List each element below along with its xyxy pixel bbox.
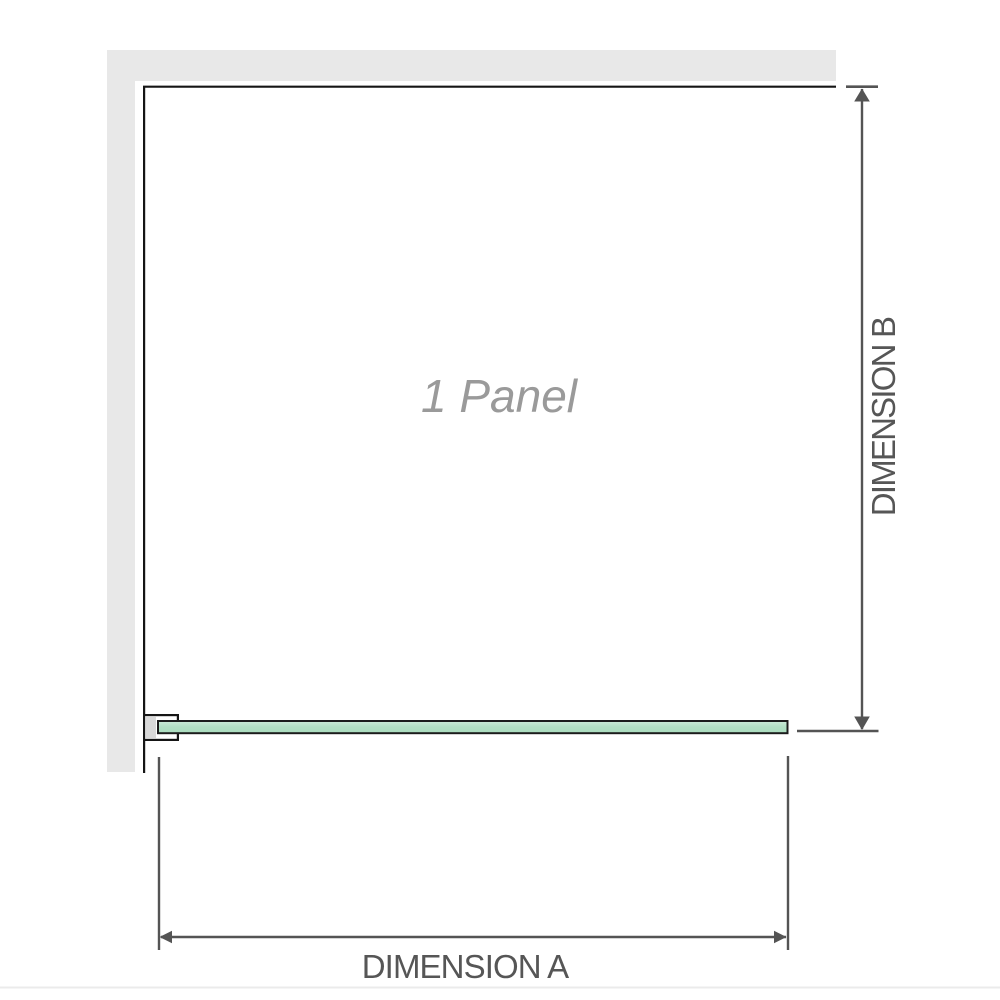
svg-text:DIMENSION A: DIMENSION A bbox=[362, 948, 569, 985]
svg-text:DIMENSION B: DIMENSION B bbox=[865, 317, 902, 516]
svg-text:1 Panel: 1 Panel bbox=[421, 370, 579, 422]
